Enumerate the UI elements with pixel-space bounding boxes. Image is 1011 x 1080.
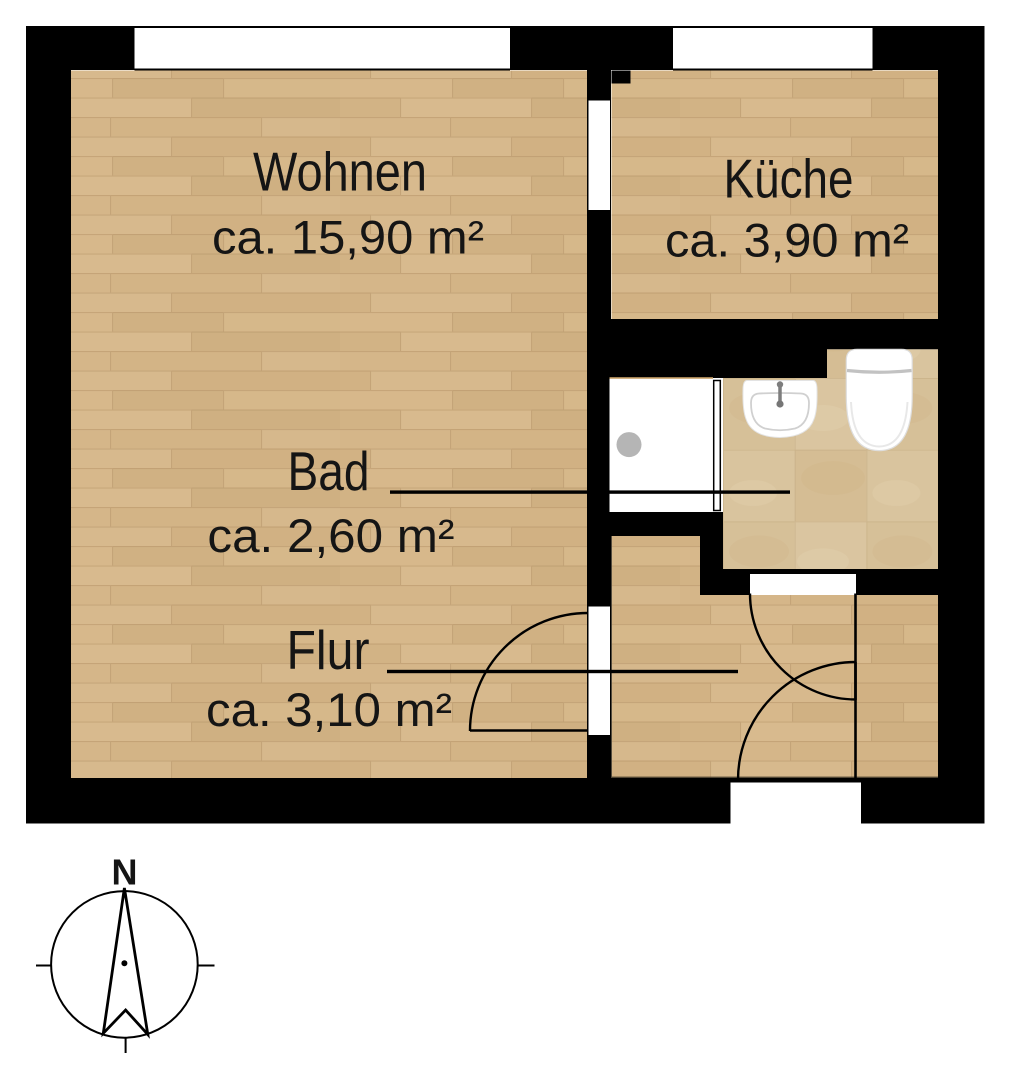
svg-text:ca. 15,90 m²: ca. 15,90 m² bbox=[212, 211, 484, 264]
svg-text:Küche: Küche bbox=[724, 148, 854, 210]
svg-text:Bad: Bad bbox=[288, 440, 370, 502]
svg-text:Flur: Flur bbox=[287, 619, 370, 681]
svg-text:ca. 3,90 m²: ca. 3,90 m² bbox=[665, 213, 909, 266]
svg-text:Wohnen: Wohnen bbox=[253, 140, 427, 202]
svg-text:ca. 3,10 m²: ca. 3,10 m² bbox=[206, 683, 452, 736]
svg-text:N: N bbox=[112, 851, 138, 892]
svg-text:ca. 2,60 m²: ca. 2,60 m² bbox=[207, 509, 454, 562]
